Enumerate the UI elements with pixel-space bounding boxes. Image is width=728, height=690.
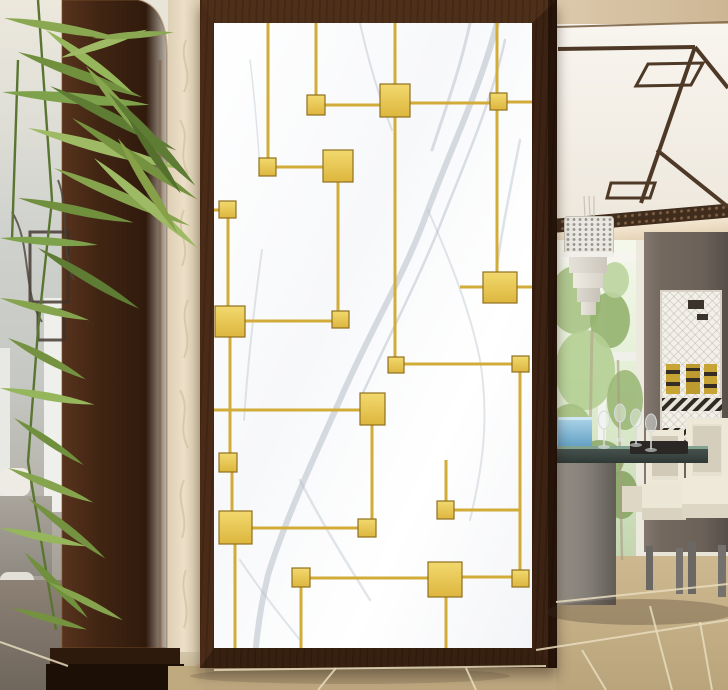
dining-chair-2-seat xyxy=(642,484,686,510)
dining-ceiling xyxy=(556,24,728,218)
marble-surface xyxy=(214,23,532,648)
dining-chair-1-seat xyxy=(682,478,728,506)
table-pedestal xyxy=(556,463,616,605)
dining-chair-2-leg-2 xyxy=(676,548,683,594)
chandelier-tier-4 xyxy=(581,302,596,315)
left-door-frame xyxy=(44,298,62,512)
dining-chair-1-leg-2 xyxy=(718,545,726,597)
arch-base-step xyxy=(50,648,180,668)
dining-chair-1-apron xyxy=(682,504,728,518)
wallpaper-strip xyxy=(168,0,202,690)
chandelier-tier-1 xyxy=(569,257,607,273)
floor-sliver xyxy=(168,666,202,690)
table-tray xyxy=(630,441,688,454)
ceiling-top-band xyxy=(556,0,728,26)
marble-partition-screen xyxy=(200,0,557,668)
chandelier-tier-3 xyxy=(577,288,600,302)
interior-photo xyxy=(0,0,728,690)
arch-column xyxy=(62,0,167,648)
dining-chair-1-leg xyxy=(688,542,696,594)
chandelier-tier-2 xyxy=(573,273,603,288)
left-room-floor xyxy=(0,580,68,690)
gold-geometric-pattern xyxy=(214,23,532,648)
dining-chair-2-apron xyxy=(642,508,686,520)
bench-pillow xyxy=(0,468,30,496)
blue-glass-box xyxy=(558,417,592,448)
chandelier-crown xyxy=(564,216,614,256)
gray-bench xyxy=(0,496,52,576)
dining-chair-2-leg xyxy=(646,546,653,590)
